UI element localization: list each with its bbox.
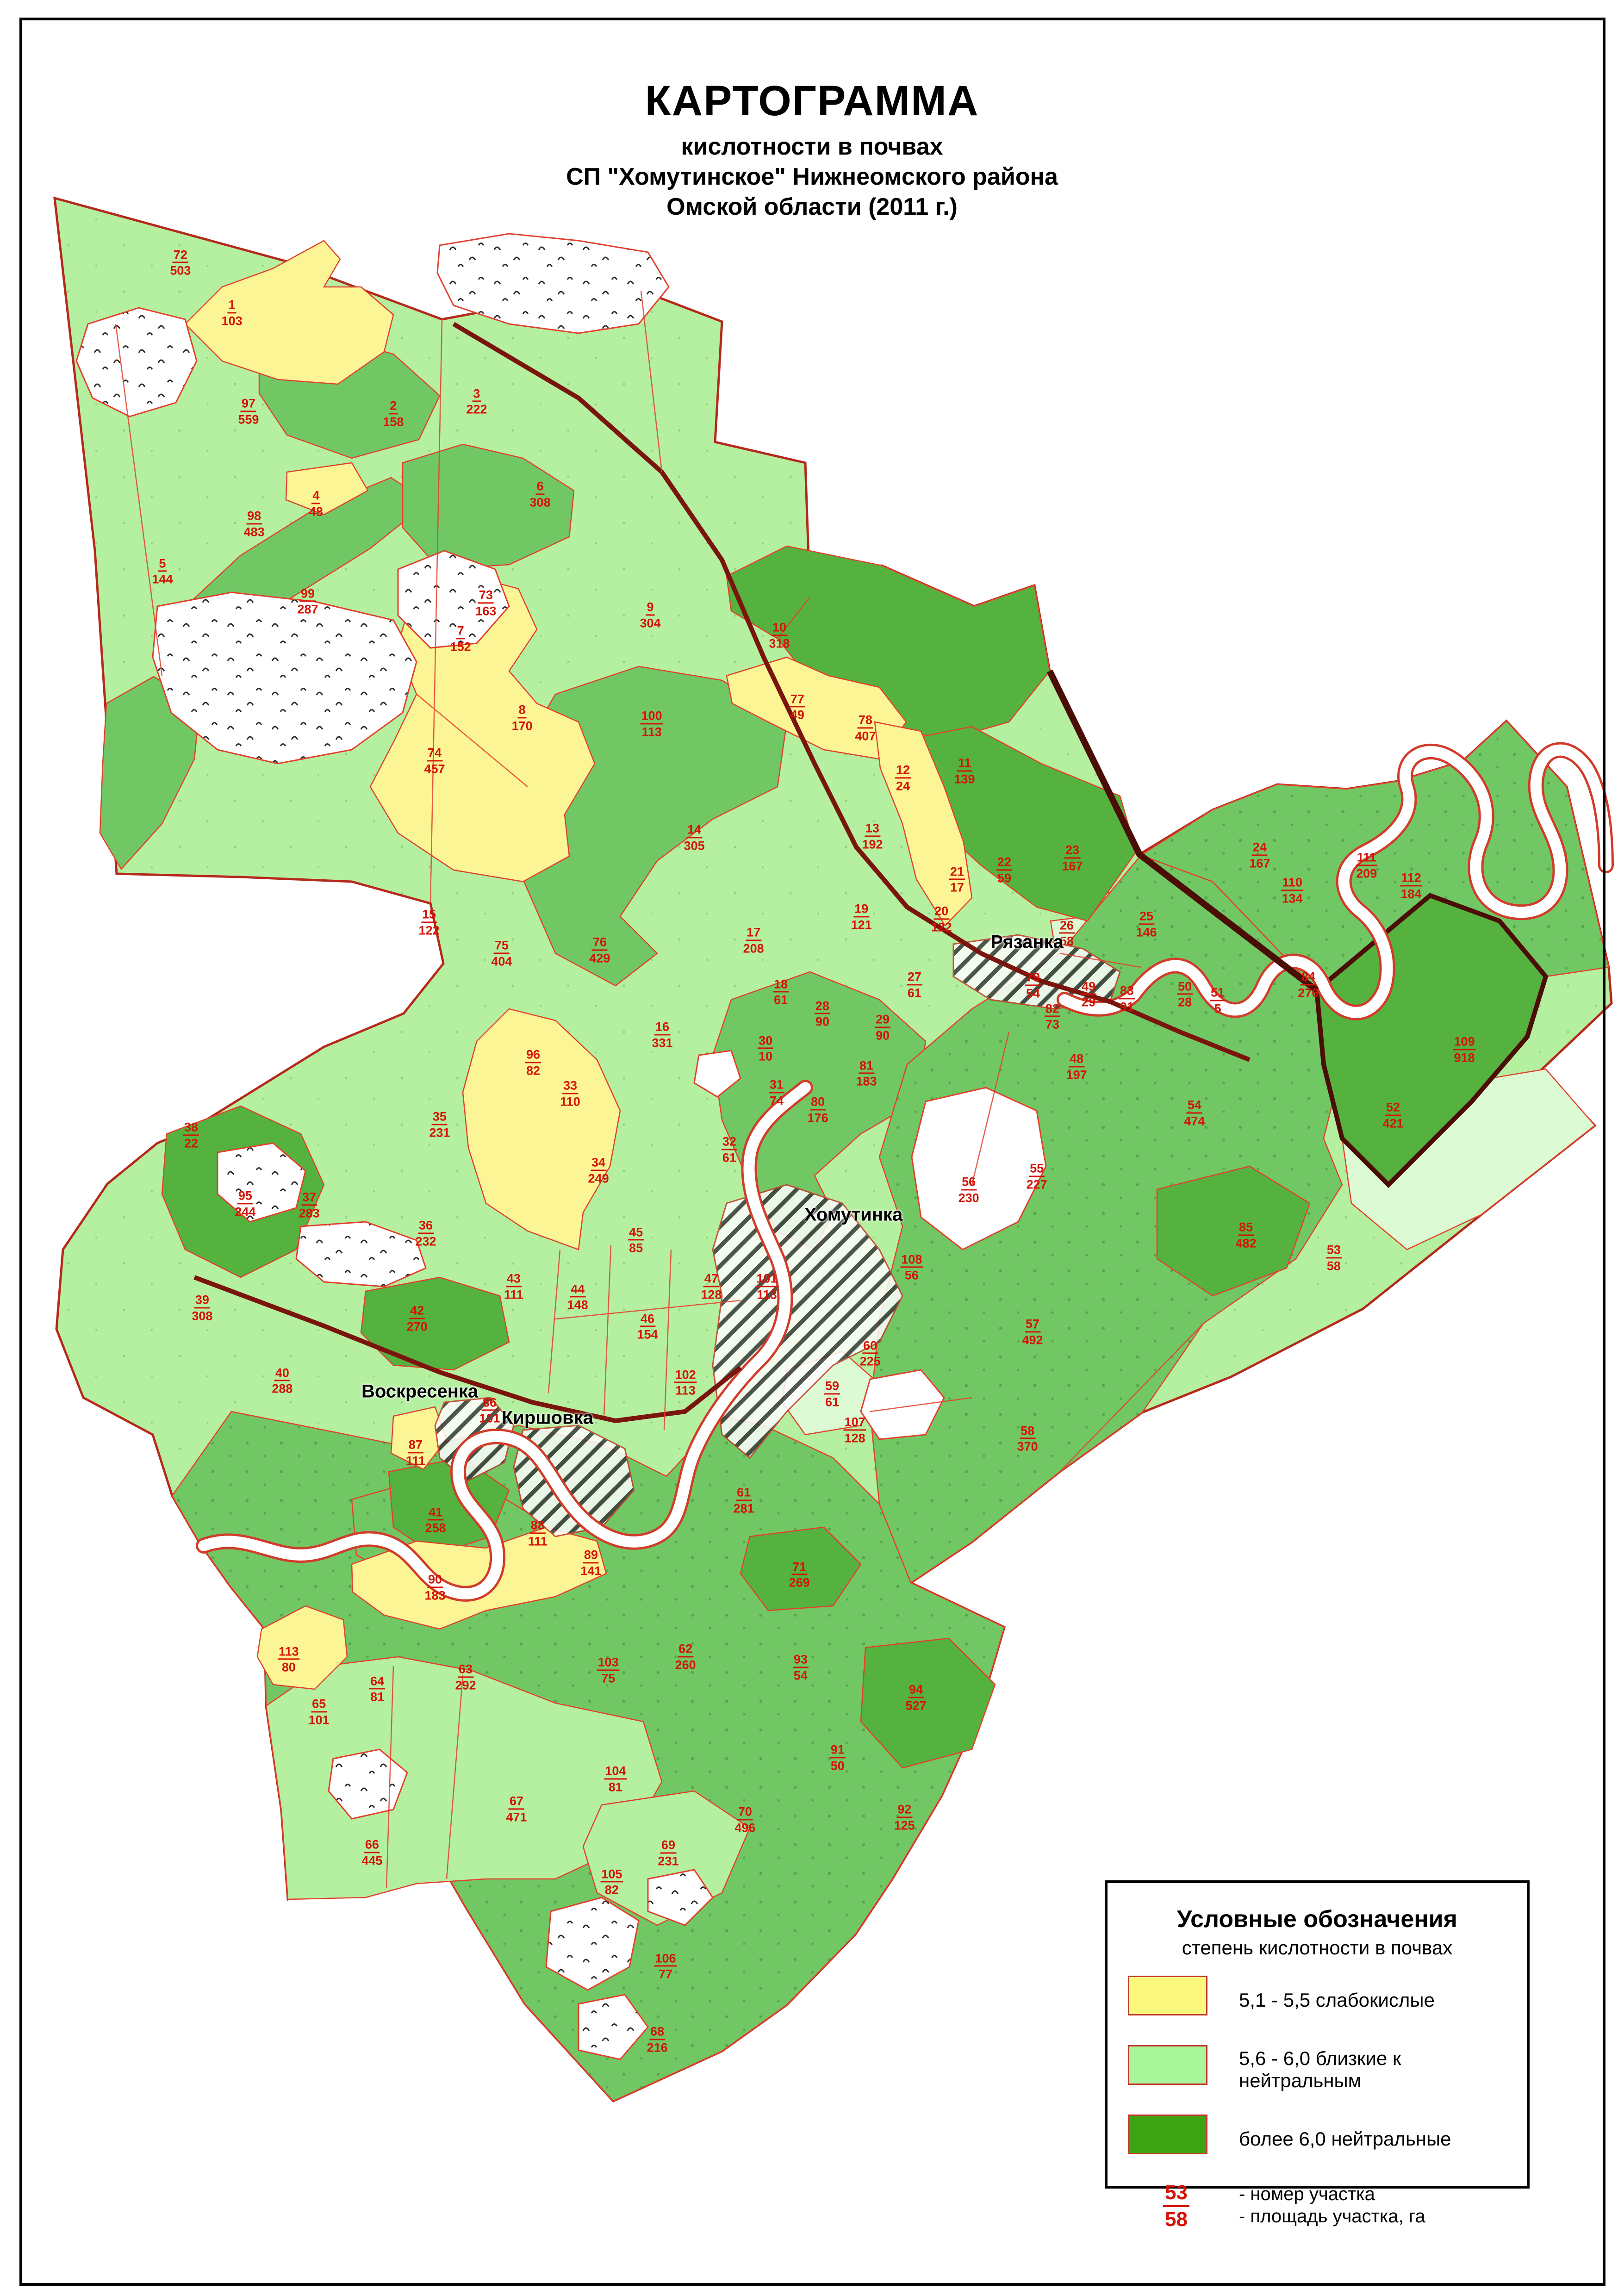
legend-example-number-caption: - номер участка <box>1239 2183 1425 2205</box>
legend-subheading: степень кислотности в почвах <box>1108 1937 1527 1959</box>
legend-example: 53 58 - номер участка - площадь участка,… <box>1128 2181 1527 2237</box>
legend-row-near-neutral: 5,6 - 6,0 близкие к нейтральным <box>1128 2041 1527 2098</box>
legend-label-acidic: 5,1 - 5,5 слабокислые <box>1239 1972 1435 2028</box>
legend-example-area: 58 <box>1163 2207 1189 2231</box>
legend-swatch-acidic <box>1128 1976 1207 2015</box>
legend-swatch-near-neutral <box>1128 2045 1207 2085</box>
map-subtitle-1: кислотности в почвах <box>0 132 1624 162</box>
cartogram-page: 1103215832224485144630871528170930410318… <box>0 0 1624 2295</box>
map-title: КАРТОГРАММА <box>0 79 1624 124</box>
legend-heading: Условные обозначения <box>1108 1905 1527 1933</box>
title-block: КАРТОГРАММА кислотности в почвах СП "Хом… <box>0 79 1624 222</box>
legend-example-fraction: 53 58 <box>1163 2181 1189 2231</box>
legend-example-captions: - номер участка - площадь участка, га <box>1239 2183 1425 2227</box>
map-subtitle-3: Омской области (2011 г.) <box>0 192 1624 222</box>
legend-example-area-caption: - площадь участка, га <box>1239 2205 1425 2227</box>
legend-swatch-neutral <box>1128 2115 1207 2154</box>
legend-row-neutral: более 6,0 нейтральные <box>1128 2111 1527 2167</box>
legend-row-acidic: 5,1 - 5,5 слабокислые <box>1128 1972 1527 2028</box>
legend-box: Условные обозначения степень кислотности… <box>1105 1880 1530 2189</box>
legend-label-near-neutral: 5,6 - 6,0 близкие к нейтральным <box>1239 2041 1527 2098</box>
map-subtitle-2: СП "Хомутинское" Нижнеомского района <box>0 162 1624 192</box>
legend-label-neutral: более 6,0 нейтральные <box>1239 2111 1451 2167</box>
legend-example-number: 53 <box>1163 2181 1189 2207</box>
